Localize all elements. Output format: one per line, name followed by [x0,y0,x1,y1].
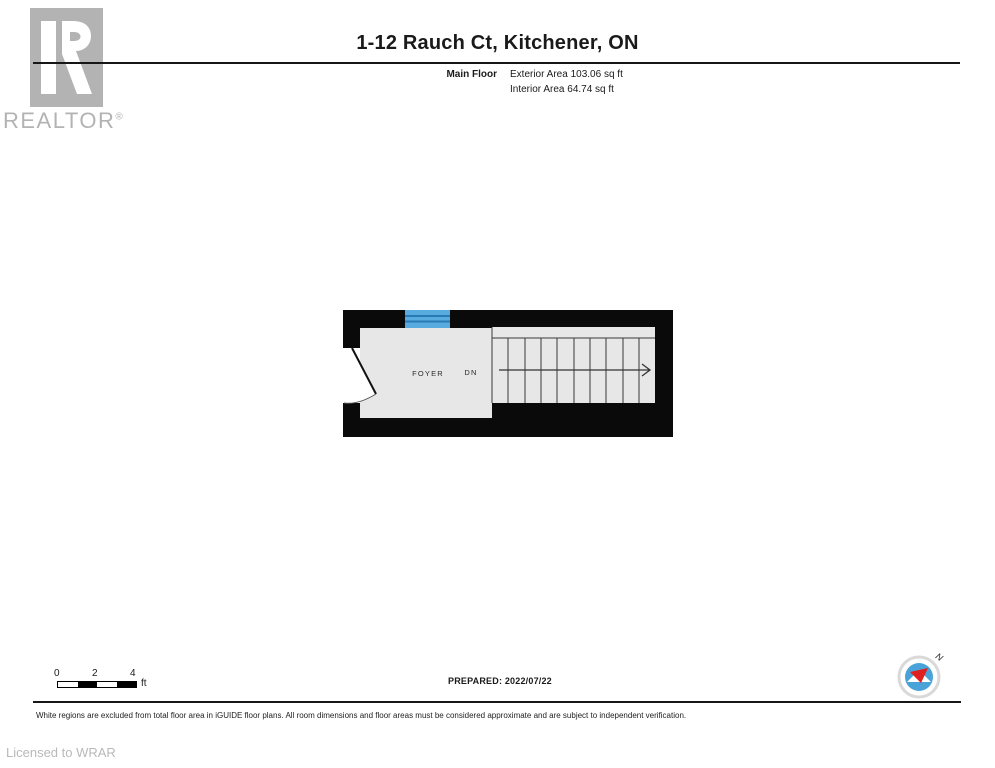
floor-plan: FOYER DN [343,310,673,437]
footer-divider [33,701,961,703]
realtor-r-glyph [30,8,103,107]
exterior-area-label: Exterior Area 103.06 sq ft [510,69,623,80]
realtor-brand-text: REALTOR [3,108,115,133]
scale-unit-label: ft [141,678,147,689]
window-icon [405,310,450,328]
realtor-logo-wordmark: REALTOR® [3,108,124,134]
realtor-logo-icon [30,8,103,107]
scale-tick-4: 4 [130,668,136,679]
scale-segment [58,682,78,687]
stairs-label-dn: DN [464,368,477,377]
scale-segment [117,682,137,687]
prepared-date-label: PREPARED: 2022/07/22 [448,676,552,686]
interior-area-label: Interior Area 64.74 sq ft [510,84,614,95]
scale-segment [97,682,117,687]
scale-bar-segments [57,681,137,688]
licensed-to-label: Licensed to WRAR [6,745,116,760]
page-title: 1-12 Rauch Ct, Kitchener, ON [0,32,995,55]
header-divider [33,62,960,64]
compass-icon: N [897,653,943,699]
scale-tick-0: 0 [54,668,60,679]
room-label-foyer: FOYER [412,369,444,378]
scale-tick-2: 2 [92,668,98,679]
registered-mark: ® [115,112,124,123]
scale-segment [78,682,98,687]
disclaimer-text: White regions are excluded from total fl… [36,711,966,720]
scale-bar: 0 2 4 ft [50,668,170,692]
